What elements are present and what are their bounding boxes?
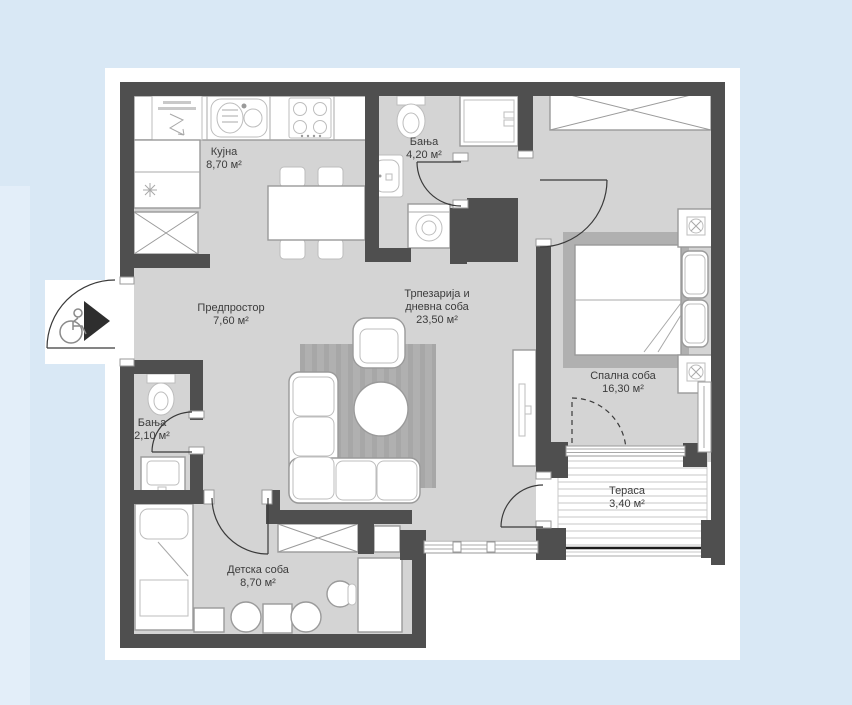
kitchen-sink: [211, 99, 267, 137]
washbasin: [141, 457, 185, 495]
dining-chair: [318, 239, 343, 259]
floor-plan-drawing: [0, 0, 852, 705]
single-bed: [135, 504, 193, 630]
entrance-symbols: [60, 301, 110, 343]
kitchen-tall-cabinet: [134, 140, 200, 208]
stool: [231, 602, 261, 632]
washing-machine: [408, 204, 450, 248]
electrical-cabinet: [152, 96, 202, 140]
living-room-window: [424, 541, 538, 553]
dining-chair: [318, 167, 343, 187]
desk-chair: [327, 581, 356, 607]
toilet: [397, 96, 425, 138]
dining-table: [268, 186, 365, 240]
room-label-terrace: Тераса 3,40 м²: [609, 485, 645, 511]
bedside-box: [194, 608, 224, 632]
room-label-kids-room: Детска соба 8,70 м²: [227, 564, 289, 590]
room-label-kitchen: Кујна 8,70 м²: [206, 146, 242, 172]
double-bed: [575, 245, 681, 355]
toilet: [147, 374, 175, 415]
coffee-table: [354, 382, 408, 436]
kids-wardrobe: [278, 524, 358, 552]
tv-unit: [513, 350, 536, 466]
light-asterisk-icon: [143, 183, 157, 197]
shower-cabin: [460, 96, 518, 146]
wheelchair-icon: [60, 309, 86, 343]
dining-chair: [280, 167, 305, 187]
stove: [289, 98, 331, 138]
kids-cabinet: [374, 526, 400, 552]
desk: [358, 558, 402, 632]
bedroom-terrace-window: [566, 446, 685, 456]
entrance-arrow-icon: [84, 301, 110, 341]
room-label-living-dining: Трпезарија и дневна соба 23,50 м²: [393, 288, 481, 327]
nightstand: [678, 209, 712, 247]
play-table: [263, 604, 292, 633]
room-label-bedroom: Спална соба 16,30 м²: [590, 370, 656, 396]
kitchen-wardrobe: [134, 212, 198, 254]
stool: [291, 602, 321, 632]
pillow: [682, 251, 708, 298]
pillow: [682, 300, 708, 347]
room-label-hallway: Предпростор 7,60 м²: [197, 302, 264, 328]
room-label-bathroom-large: Бања 4,20 м²: [406, 136, 442, 162]
bedroom-side-window: [698, 382, 711, 452]
dining-chair: [280, 239, 305, 259]
floor-plan-page: Кујна 8,70 м² Бања 4,20 м² Предпростор 7…: [0, 0, 852, 705]
room-label-bathroom-small: Бања 2,10 м²: [134, 417, 170, 443]
